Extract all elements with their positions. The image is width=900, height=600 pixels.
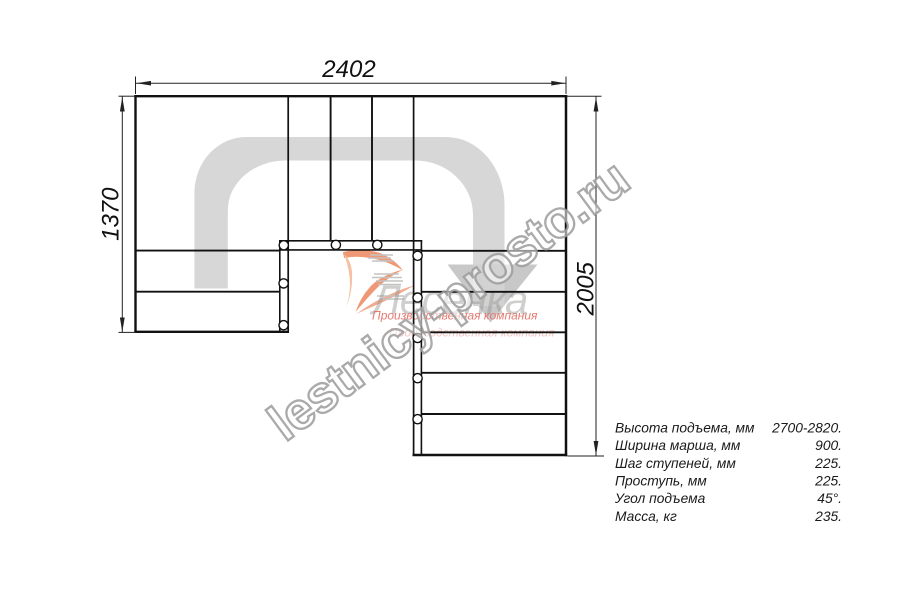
svg-text:45°.: 45°.: [817, 491, 842, 506]
svg-text:Шаг ступеней, мм: Шаг ступеней, мм: [615, 456, 736, 471]
svg-text:Масса, кг: Масса, кг: [615, 509, 677, 524]
svg-text:Угол подъема: Угол подъема: [614, 491, 706, 506]
svg-text:2005: 2005: [573, 261, 600, 316]
svg-text:2402: 2402: [321, 56, 375, 83]
svg-text:Высота подъема, мм: Высота подъема, мм: [615, 421, 755, 436]
svg-text:2700-2820.: 2700-2820.: [771, 421, 842, 436]
svg-text:Проступь, мм: Проступь, мм: [615, 474, 707, 489]
svg-text:900.: 900.: [815, 438, 842, 453]
svg-text:Ширина марша, мм: Ширина марша, мм: [615, 438, 741, 453]
svg-text:225.: 225.: [814, 456, 842, 471]
svg-text:1370: 1370: [98, 187, 125, 241]
svg-text:235.: 235.: [814, 509, 842, 524]
svg-text:225.: 225.: [814, 474, 842, 489]
